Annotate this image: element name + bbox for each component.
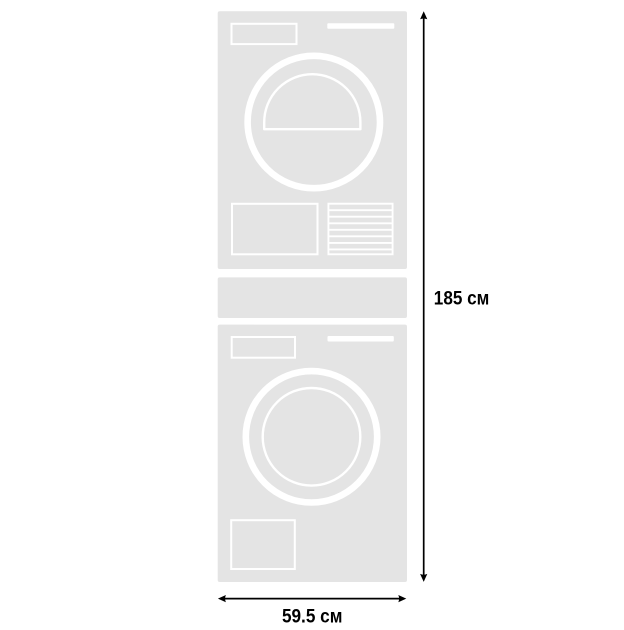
svg-text:59.5 см: 59.5 см xyxy=(282,605,343,625)
svg-text:185 см: 185 см xyxy=(434,288,490,310)
